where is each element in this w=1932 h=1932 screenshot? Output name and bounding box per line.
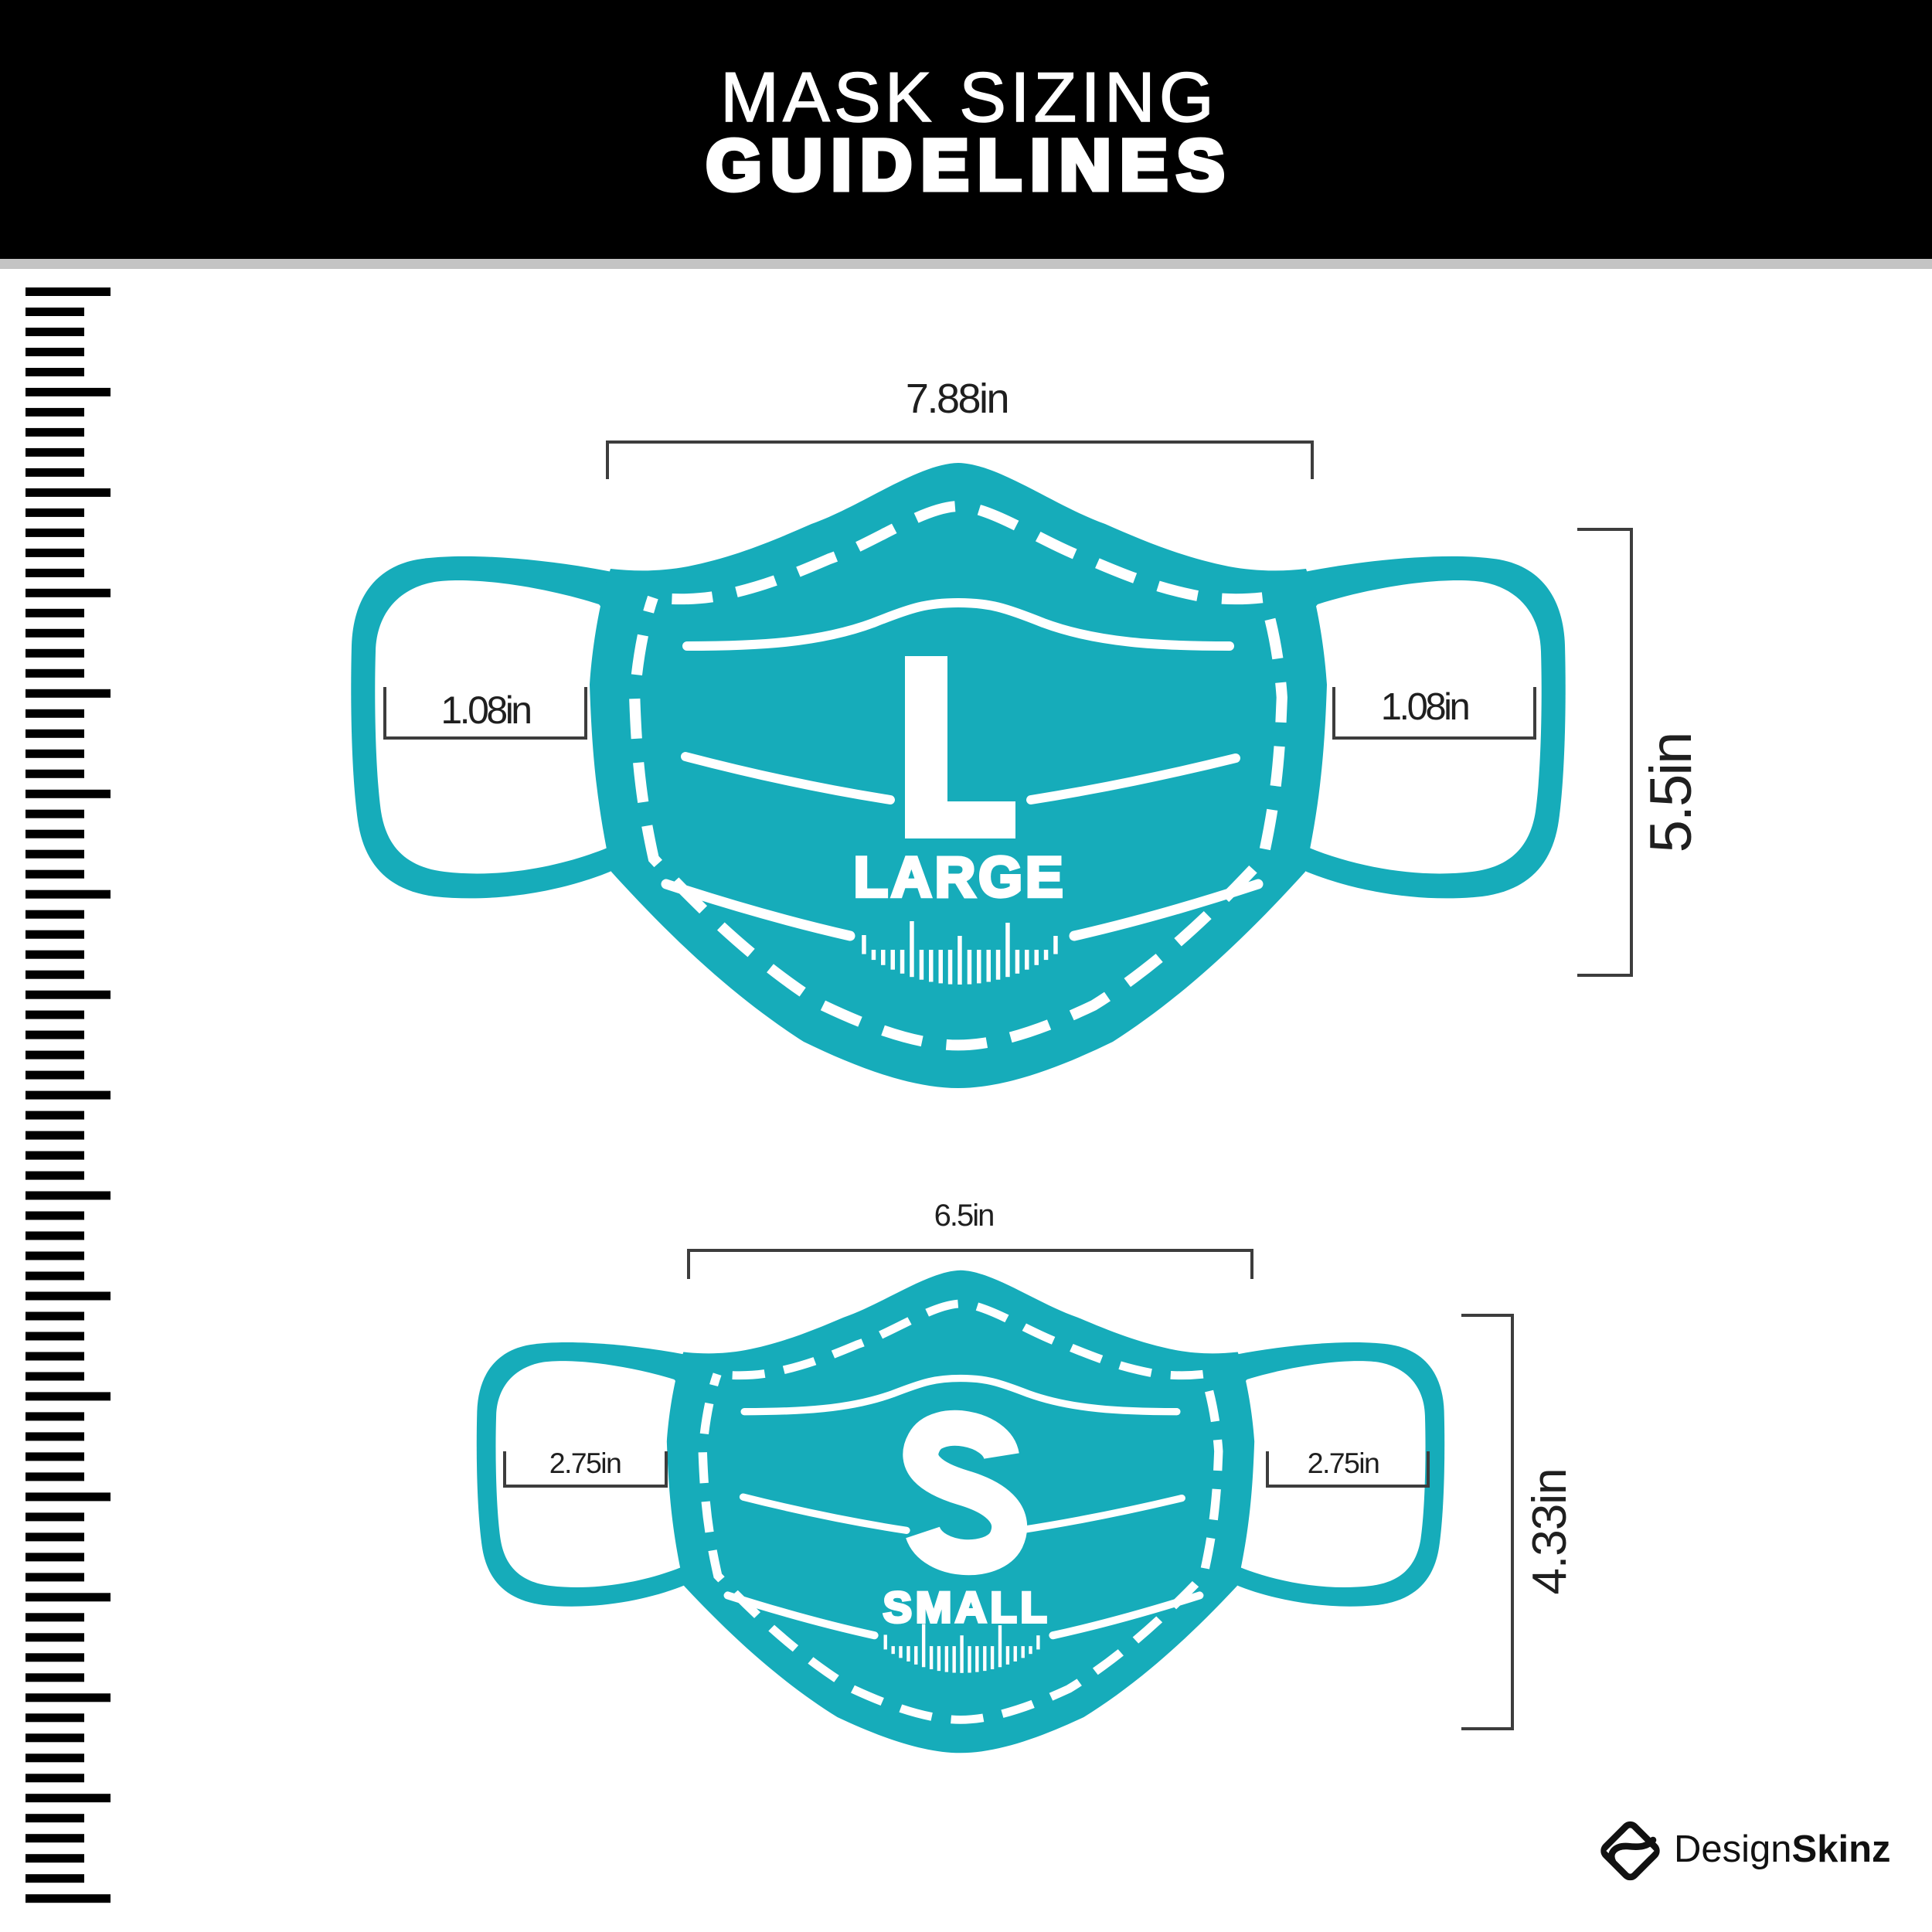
svg-text:DesignSkinz: DesignSkinz bbox=[1674, 1828, 1891, 1870]
svg-text:2.75in: 2.75in bbox=[1308, 1447, 1379, 1479]
svg-text:MASK SIZING: MASK SIZING bbox=[720, 59, 1218, 137]
svg-text:7.88in: 7.88in bbox=[906, 376, 1008, 422]
svg-text:5.5in: 5.5in bbox=[1638, 733, 1704, 853]
svg-text:1.08in: 1.08in bbox=[1381, 686, 1469, 728]
svg-text:LARGE: LARGE bbox=[854, 846, 1066, 909]
svg-text:GUIDELINES: GUIDELINES bbox=[706, 126, 1233, 205]
svg-text:6.5in: 6.5in bbox=[934, 1199, 994, 1233]
svg-text:SMALL: SMALL bbox=[883, 1583, 1051, 1631]
svg-text:4.33in: 4.33in bbox=[1523, 1469, 1577, 1595]
svg-text:1.08in: 1.08in bbox=[440, 689, 530, 732]
svg-text:2.75in: 2.75in bbox=[549, 1447, 621, 1479]
